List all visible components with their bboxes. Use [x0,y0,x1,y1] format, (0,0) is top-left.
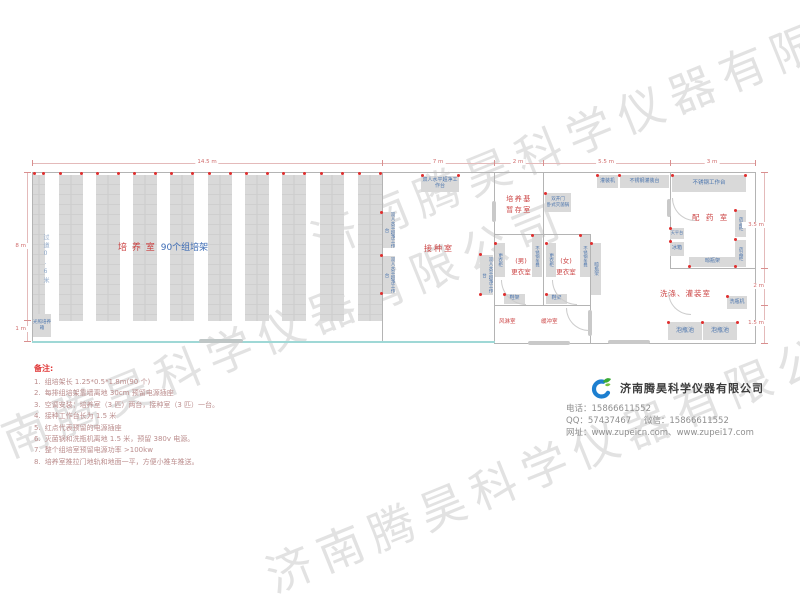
power-outlet-dot [457,174,460,177]
dim-tick [382,160,383,166]
dim-tick [761,268,768,269]
phone-label: 电话： [566,404,592,414]
note-item: 7.整个组培室预留电源功率 >100kw [34,445,219,456]
note-text: 空调安装：培养室（3 匹）两台，接种室（3 匹）一台。 [45,401,219,409]
power-outlet-dot [380,292,383,295]
floorplan-page: 济南腾昊科学仪器有限公司 济南腾昊科学仪器有限公司 济南腾昊科学仪器有限公司 培… [0,0,800,600]
laminar-flow-bench: 双人水平超净工作台 [421,176,459,192]
power-outlet-dot [688,265,691,268]
aisle-note: 过道0.6米 [41,234,50,298]
wall-changing-bottom [494,305,591,306]
wall-dispensing-bottom [670,268,756,269]
company-qq-line: QQ：57437467 微信：15866611552 [566,414,729,426]
dim-tick [494,160,495,166]
power-outlet-dot [669,227,672,230]
notes-title: 备注: [34,363,219,374]
power-outlet-dot [380,254,383,257]
inoculation-room-label: 接种室 [424,243,454,255]
dim-tick [761,172,768,173]
culture-room-rack-count: 90个组培架 [161,240,208,253]
refrigerator: 冰箱 [670,242,684,256]
note-item: 2.每排组培架靠墙离地 30cm 预留电源插座 [34,388,219,399]
glass-sliding-door-line [32,341,495,343]
wall-top [32,172,756,173]
dim-label-right: 3.5 m [742,222,766,228]
note-number: 4. [34,412,41,420]
note-item: 4.接种工作台长为 1.5 米 [34,411,219,422]
note-item: 3.空调安装：培养室（3 匹）两台，接种室（3 匹）一台。 [34,400,219,411]
power-outlet-dot [734,265,737,268]
door-leaf [492,201,496,222]
dim-label-left: 8 m [8,243,28,249]
door-arc [566,308,589,331]
dim-tick [24,320,31,321]
door-arc [668,292,691,315]
door-leaf [528,341,570,345]
dim-tick [24,172,31,173]
wall-changing-top [494,234,591,235]
dim-label-top: 2 m [511,159,526,165]
balance-table: 天平台 [670,228,684,239]
male-label-line1: (男) [507,256,535,267]
power-outlet-dot [544,192,547,195]
web-label: 网址： [566,428,592,438]
culture-room-name: 培 养 室 [118,240,156,253]
door-leaf [667,199,671,217]
power-outlet-dot [726,295,729,298]
tissue-culture-rack [320,175,344,321]
dim-label-top: 3 m [705,159,720,165]
tissue-culture-rack [358,175,382,321]
dim-tick [670,160,671,166]
power-outlet-dot [503,293,506,296]
note-text: 整个组培室预留电源功率 >100kw [45,446,153,454]
dim-tick [24,341,31,342]
air-shower-label: 风淋室 [499,318,516,326]
company-logo-icon [590,376,614,400]
steel-bench: 不锈钢条凳 [580,235,590,277]
bottle-drying-rack: 晾瓶架 [689,257,736,267]
power-outlet-dot [669,240,672,243]
tissue-culture-rack [282,175,306,321]
note-text: 每排组培架靠墙离地 30cm 预留电源插座 [45,389,174,397]
phone-value: 15866611552 [592,404,652,414]
sliding-door-leaf [199,339,243,343]
dimension-line-top [32,163,756,164]
bottle-washer: 洗瓶机 [727,296,747,309]
note-text: 组培架长 1.25*0.5*1.8m(90 个) [45,378,151,386]
power-outlet-dot [380,211,383,214]
power-outlet-dot [579,234,582,237]
sterilizer-line2: 卧式灭菌锅 [547,203,570,208]
tissue-culture-rack [208,175,232,321]
dispensing-room-label: 配 药 室 [692,212,729,223]
dim-label-left: 1 m [8,326,28,332]
tissue-culture-rack [59,175,83,321]
note-number: 7. [34,446,41,454]
female-label-line2: 更衣室 [552,267,580,278]
bottle-drying-rack-vertical: 晾瓶架 [591,243,601,295]
note-number: 6. [34,435,41,443]
note-item: 1.组培架长 1.25*0.5*1.8m(90 个) [34,377,219,388]
power-outlet-dot [531,234,534,237]
website-2: www.zupei17.com [677,428,754,438]
dim-label-top: 7 m [431,159,446,165]
qq-value: 57437467 [588,416,631,426]
power-outlet-dot [421,174,424,177]
note-text: 培养室推拉门地轨和地面一平，方便小推车推送。 [45,458,199,466]
light-incubator: 光照培养箱 [33,314,51,337]
medicine-cabinet: 药品柜 [735,240,746,267]
female-changing-room-label: (女) 更衣室 [552,256,580,278]
dimension-line-right [764,172,765,344]
company-name: 济南腾昊科学仪器有限公司 [620,380,764,396]
female-label-line1: (女) [552,256,580,267]
power-outlet-dot [734,209,737,212]
power-outlet-dot [545,242,548,245]
laminar-flow-bench: 双人水平超净工作台 [383,256,395,294]
note-text: 灭菌锅和洗瓶机离地 1.5 米，预留 380v 电源。 [45,435,195,443]
power-outlet-dot [479,253,482,256]
note-number: 8. [34,458,41,466]
power-outlet-dot [671,174,674,177]
power-outlet-dot [734,238,737,241]
power-outlet-dot [744,174,747,177]
wechat-label: 微信： [644,416,670,426]
steel-filling-table: 不锈钢灌装台 [620,175,669,188]
power-outlet-dot [596,174,599,177]
laminar-flow-bench: 双人水平超净工作台 [383,212,395,248]
qq-label: QQ： [566,416,588,426]
steel-worktable: 不锈钢工作台 [672,175,746,192]
tissue-culture-rack [96,175,120,321]
medium-storage-label: 培养基 暂存室 [502,194,536,216]
filling-machine: 灌装机 [597,175,618,188]
double-door-sterilizer: 双开门 卧式灭菌锅 [545,193,571,212]
power-outlet-dot [701,321,704,324]
note-number: 1. [34,378,41,386]
company-phone-line: 电话：15866611552 [566,402,651,414]
dim-label-top: 14.5 m [195,159,218,165]
dim-tick [761,305,768,306]
power-outlet-dot [618,174,621,177]
company-header: 济南腾昊科学仪器有限公司 [590,376,764,400]
dim-label-right: 1.5 m [742,320,766,326]
medium-storage-line2: 暂存室 [502,205,536,216]
power-outlet-dot [590,242,593,245]
dimension-line-left [27,172,28,342]
note-item: 8.培养室推拉门地轨和地面一平，方便小推车推送。 [34,457,219,468]
note-number: 2. [34,389,41,397]
bottle-soaking-pool: 泡瓶池 [703,322,737,340]
medium-storage-line1: 培养基 [502,194,536,205]
power-outlet-dot [736,321,739,324]
dim-tick [543,160,544,166]
note-number: 5. [34,424,41,432]
culture-room-label: 培 养 室 90个组培架 [118,240,208,253]
company-web-line: 网址：www.zupeicn.com、www.zupei17.com [566,426,754,438]
note-text: 红点代表预留的电源插座 [45,424,122,432]
website-1: www.zupeicn.com [592,428,669,438]
laminar-flow-bench: 双人水平超净工作台 [480,255,493,295]
note-number: 3. [34,401,41,409]
dim-label-top: 5.5 m [596,159,616,165]
note-item: 5.红点代表预留的电源插座 [34,423,219,434]
tissue-culture-rack [245,175,269,321]
locker-cabinet: 更衣柜 [495,243,505,277]
power-outlet-dot [494,242,497,245]
company-block: 济南腾昊科学仪器有限公司 电话：15866611552 QQ：57437467 … [566,372,796,442]
dim-tick [761,343,768,344]
dim-label-right: 2 m [742,283,766,289]
power-outlet-dot [479,293,482,296]
power-outlet-dot [667,321,670,324]
wall-right [755,172,756,344]
male-label-line2: 更衣室 [507,267,535,278]
door-arc [672,198,695,221]
note-text: 接种工作台长为 1.5 米 [45,412,117,420]
web-separator: 、 [668,428,677,438]
door-leaf [608,340,650,344]
buffer-room-label: 缓冲室 [541,318,558,326]
dim-tick [755,160,756,166]
dim-tick [32,160,33,166]
bottle-soaking-pool: 泡瓶池 [668,322,702,340]
note-item: 6.灭菌锅和洗瓶机离地 1.5 米，预留 380v 电源。 [34,434,219,445]
notes-block: 备注: 1.组培架长 1.25*0.5*1.8m(90 个) 2.每排组培架靠墙… [34,363,219,468]
wechat-value: 15866611552 [669,416,729,426]
power-outlet-dot [545,293,548,296]
male-changing-room-label: (男) 更衣室 [507,256,535,278]
